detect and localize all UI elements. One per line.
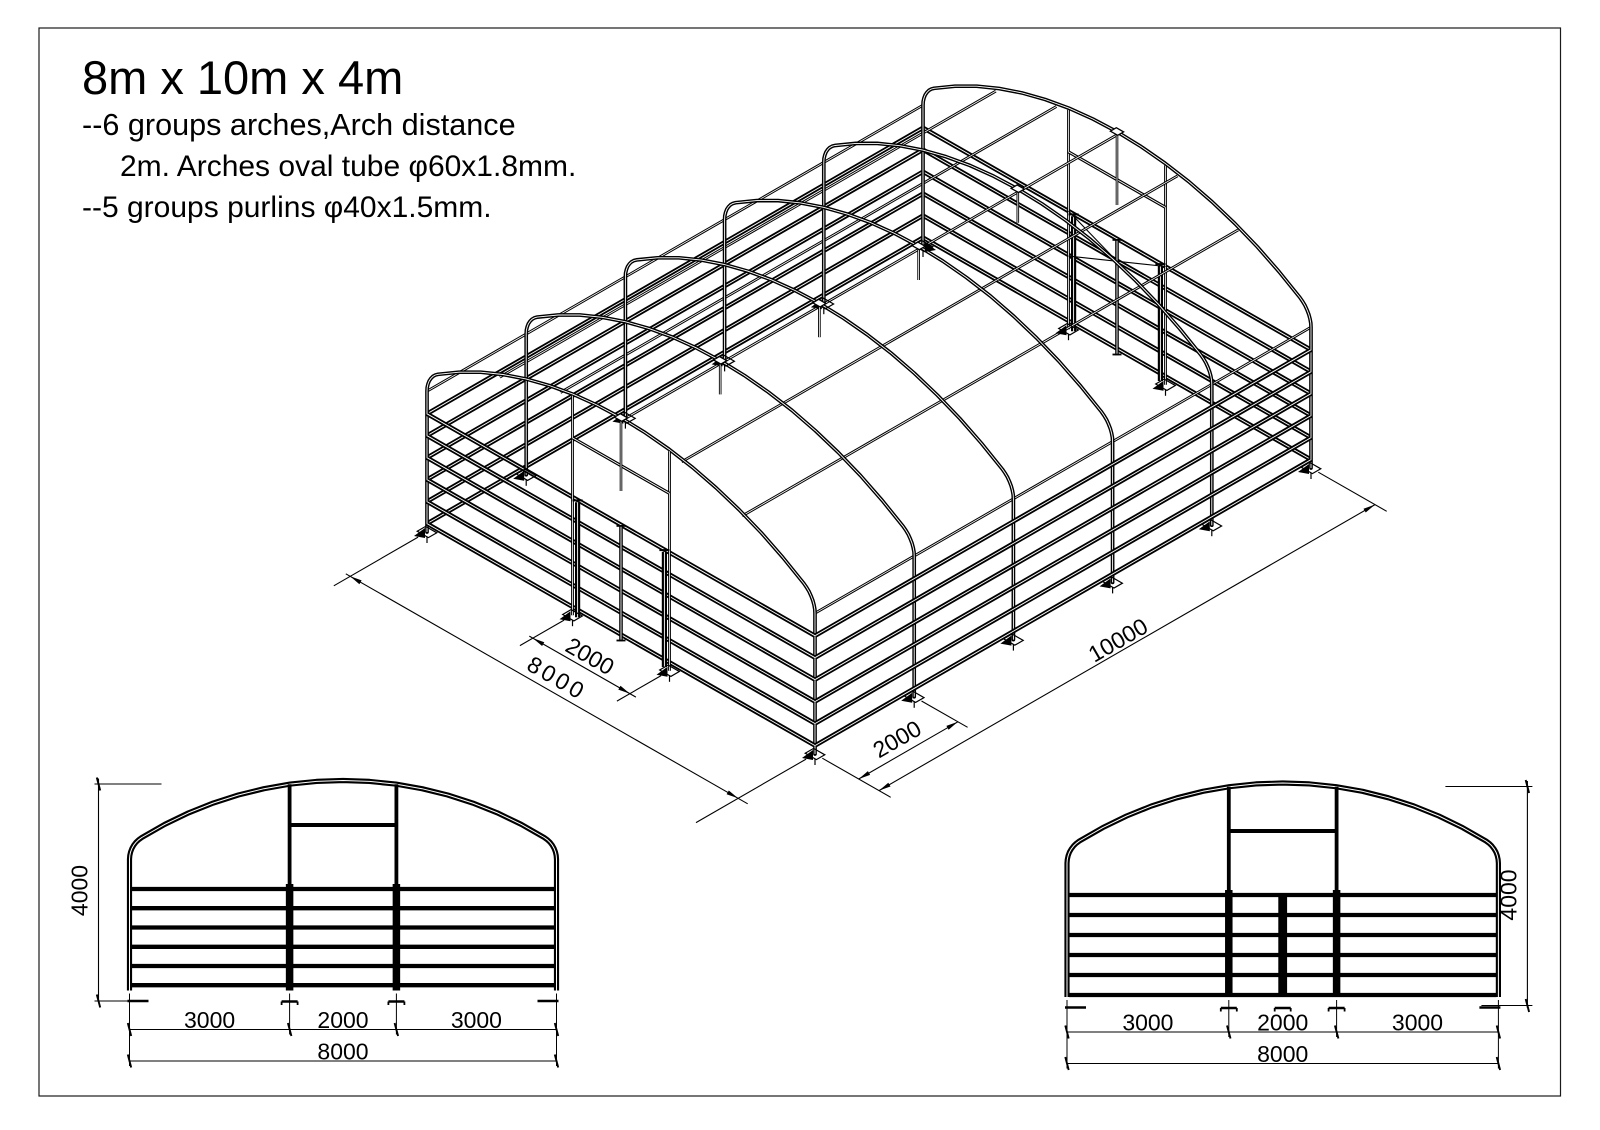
svg-text:3000: 3000: [184, 1007, 235, 1033]
svg-text:--6 groups arches,Arch distanc: --6 groups arches,Arch distance: [82, 108, 516, 142]
svg-text:4000: 4000: [1495, 869, 1521, 920]
svg-text:3000: 3000: [451, 1007, 502, 1033]
svg-text:2m. Arches oval tube φ60x1.8mm: 2m. Arches oval tube φ60x1.8mm.: [120, 150, 576, 183]
svg-text:8000: 8000: [1257, 1041, 1308, 1067]
svg-text:8m x 10m x 4m: 8m x 10m x 4m: [82, 51, 403, 104]
svg-text:--5 groups purlins φ40x1.5mm.: --5 groups purlins φ40x1.5mm.: [82, 191, 492, 224]
svg-text:2000: 2000: [1257, 1010, 1308, 1036]
svg-text:3000: 3000: [1122, 1010, 1173, 1036]
svg-text:8000: 8000: [317, 1039, 368, 1065]
svg-text:2000: 2000: [317, 1007, 368, 1033]
svg-text:3000: 3000: [1392, 1010, 1443, 1036]
svg-text:4000: 4000: [67, 865, 93, 916]
